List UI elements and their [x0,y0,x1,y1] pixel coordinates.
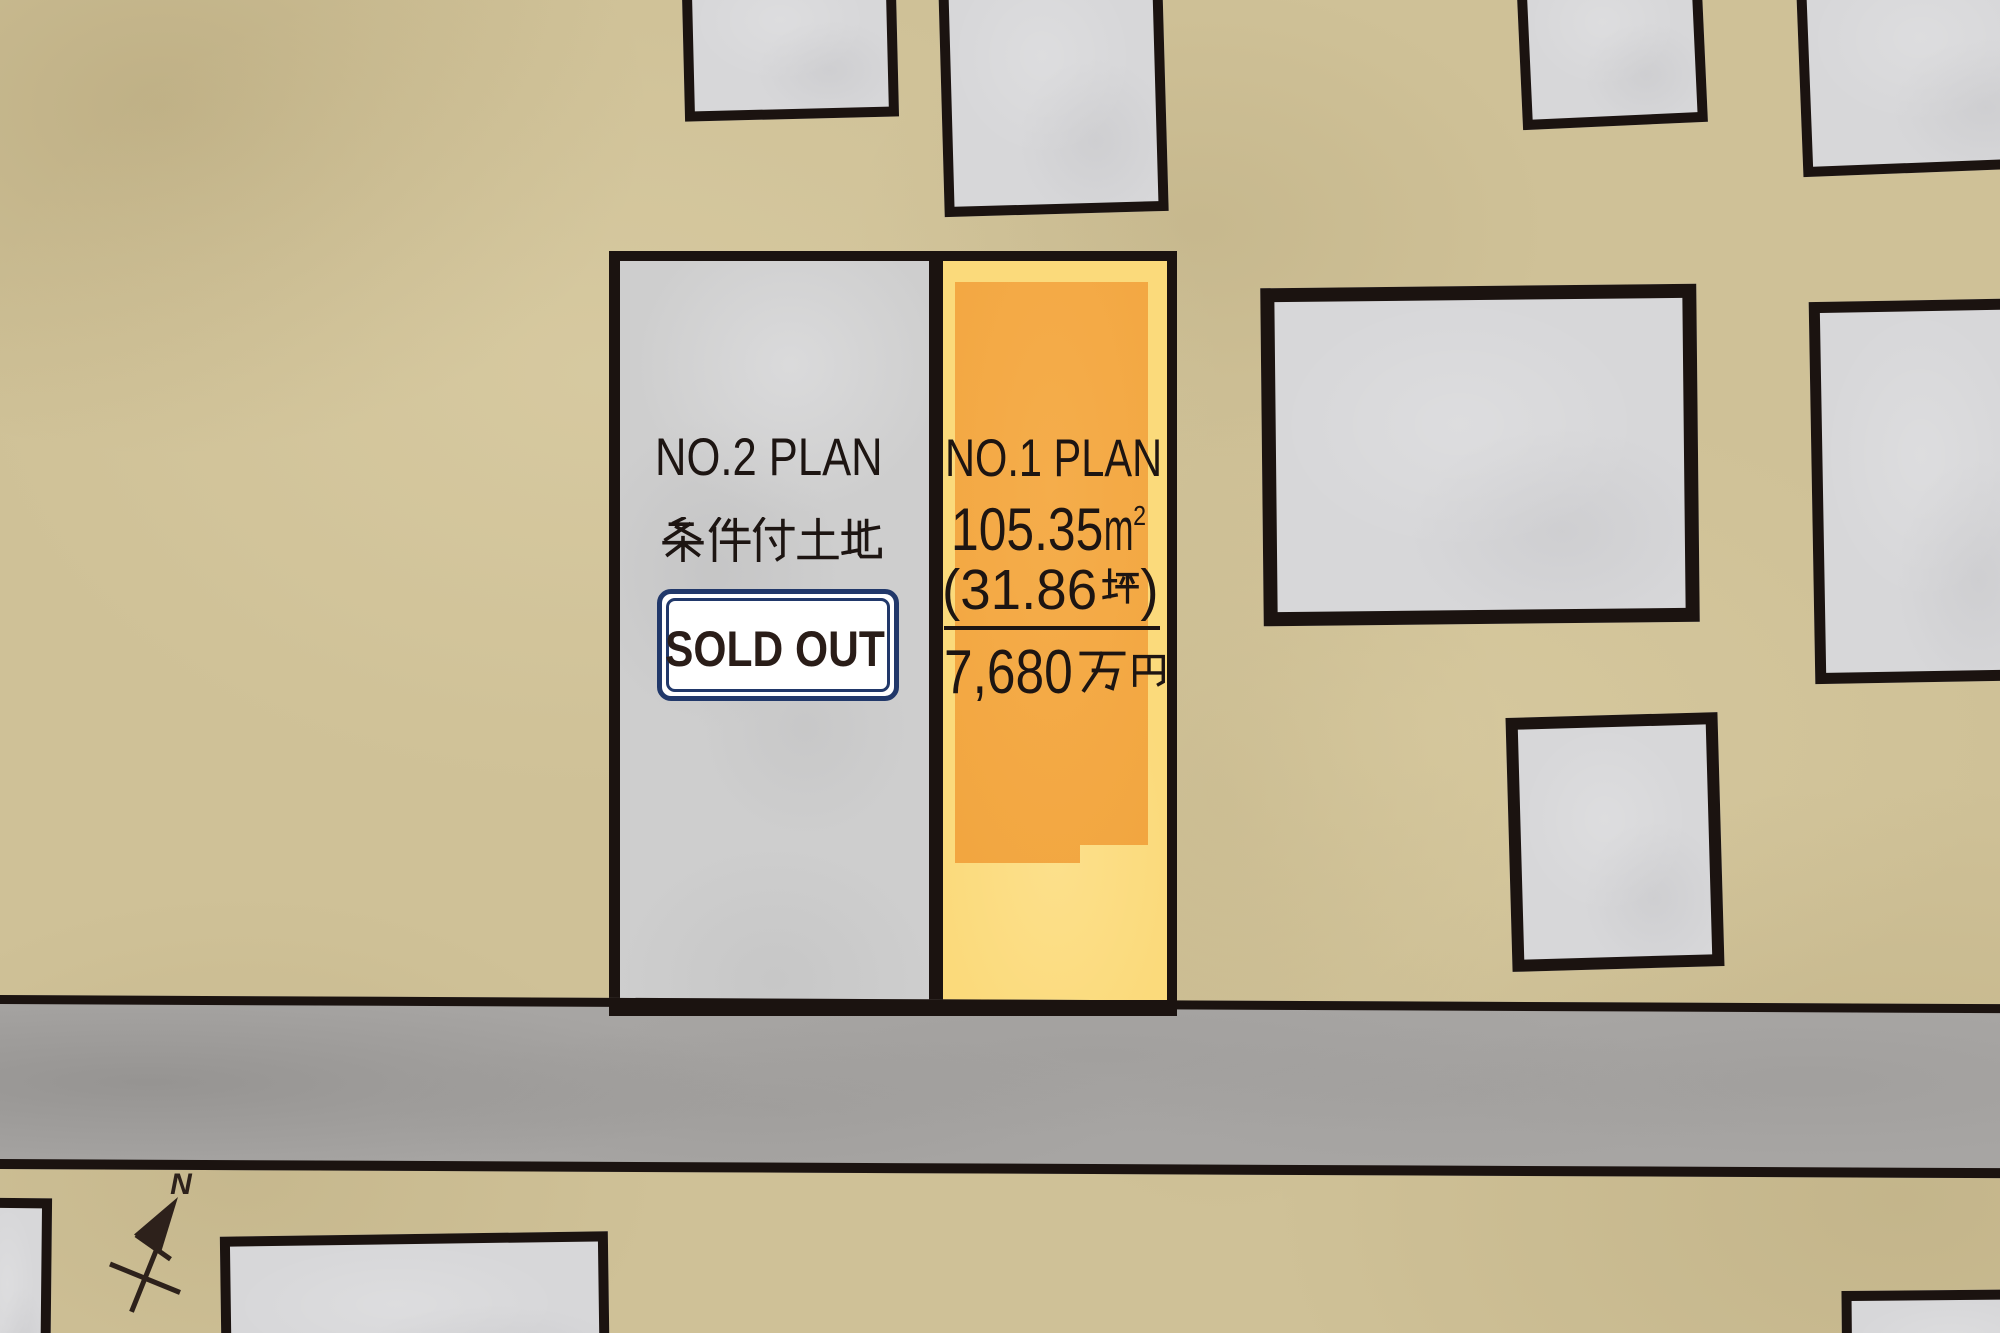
svg-text:N: N [170,1168,193,1201]
